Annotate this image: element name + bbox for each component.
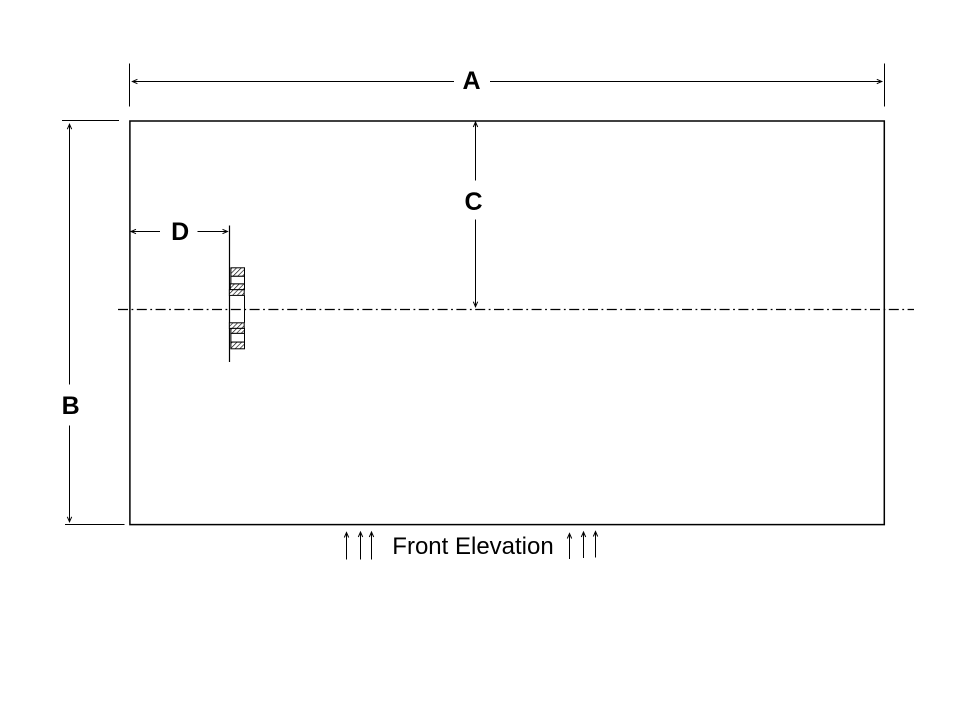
svg-text:D: D (171, 218, 189, 246)
svg-text:A: A (462, 67, 480, 95)
svg-text:C: C (464, 188, 482, 216)
svg-text:Front Elevation: Front Elevation (392, 533, 553, 560)
svg-text:B: B (62, 392, 80, 420)
